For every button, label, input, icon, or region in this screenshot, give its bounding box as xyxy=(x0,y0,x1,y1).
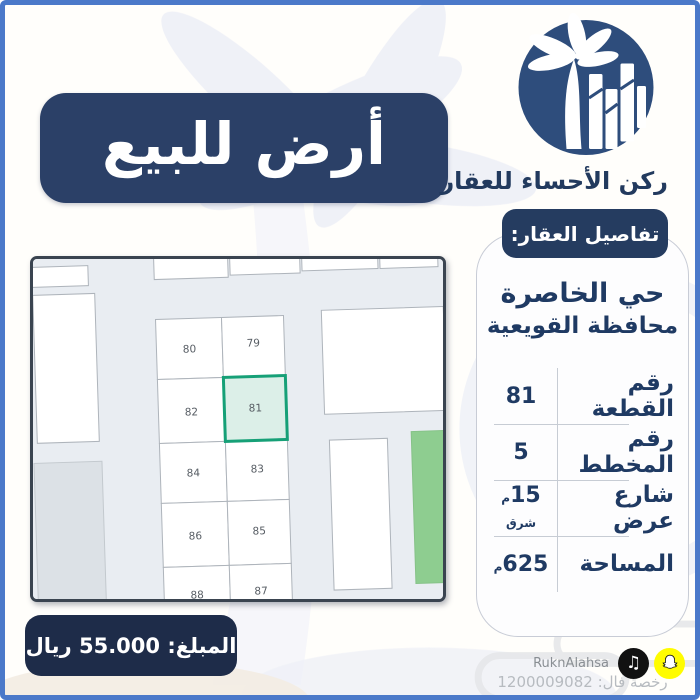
plat-map: 80 79 82 81 84 83 86 85 88 87 xyxy=(30,256,446,602)
detail-row-plot-number: رقم القطعة 81 xyxy=(477,368,688,424)
details-badge: تفاصيل العقار: xyxy=(502,209,668,258)
plot-number: 88 xyxy=(190,589,204,599)
map-block xyxy=(379,259,438,268)
price-badge: المبلغ: 55.000 ريال xyxy=(25,615,237,676)
detail-value: 625م xyxy=(485,552,557,577)
map-block xyxy=(321,306,443,414)
price-text: المبلغ: 55.000 ريال xyxy=(26,634,237,658)
plot-number: 79 xyxy=(246,337,260,349)
detail-value: 5 xyxy=(485,440,557,465)
governorate-name: محافظة القويعية xyxy=(477,312,688,342)
plot-number: 85 xyxy=(252,525,266,537)
map-green-area xyxy=(411,430,443,583)
detail-value: 15م شرق xyxy=(485,483,557,533)
title-banner: أرض للبيع xyxy=(40,93,448,203)
detail-label: المساحة xyxy=(557,536,674,592)
brand-block: ركن الأحساء للعقار xyxy=(503,13,668,195)
snapchat-ghost-icon xyxy=(659,652,681,674)
plot-number: 80 xyxy=(183,343,197,355)
map-block xyxy=(229,259,300,275)
palm-buildings-logo-icon xyxy=(511,13,661,165)
map-block xyxy=(329,438,392,590)
detail-row-area: المساحة 625م xyxy=(477,536,688,592)
license-text: رخصة فال: 1200009082 xyxy=(475,673,690,691)
details-table: رقم القطعة 81 رقم المخطط 5 شارع عرض 15م … xyxy=(477,368,688,592)
plot-number: 82 xyxy=(185,406,199,418)
plot-number: 81 xyxy=(248,402,262,414)
map-block-gray xyxy=(34,461,106,599)
detail-value: 81 xyxy=(485,384,557,409)
flyer-canvas: أرض للبيع ركن الأحساء لل xyxy=(0,0,700,700)
details-badge-label: تفاصيل العقار: xyxy=(511,222,660,246)
detail-label: رقم القطعة xyxy=(557,368,674,424)
brand-name: ركن الأحساء للعقار xyxy=(503,167,668,195)
page-title: أرض للبيع xyxy=(102,110,386,186)
map-block xyxy=(154,259,229,280)
district-name: حي الخاصرة xyxy=(477,276,688,312)
detail-label: شارع عرض xyxy=(557,480,674,536)
plot-number: 83 xyxy=(250,463,264,475)
detail-row-plan-number: رقم المخطط 5 xyxy=(477,424,688,480)
map-block xyxy=(301,259,378,271)
plot-number: 86 xyxy=(188,530,202,542)
detail-row-street-width: شارع عرض 15م شرق xyxy=(477,480,688,536)
plot-number: 87 xyxy=(254,585,268,597)
plat-map-drawing: 80 79 82 81 84 83 86 85 88 87 xyxy=(33,259,443,599)
details-panel: حي الخاصرة محافظة القويعية رقم القطعة 81… xyxy=(476,233,689,637)
social-handle: RuknAlahsa xyxy=(533,656,609,671)
map-block xyxy=(33,266,88,288)
map-block xyxy=(33,293,99,443)
plot-number: 84 xyxy=(187,467,201,479)
detail-label: رقم المخطط xyxy=(557,424,674,480)
